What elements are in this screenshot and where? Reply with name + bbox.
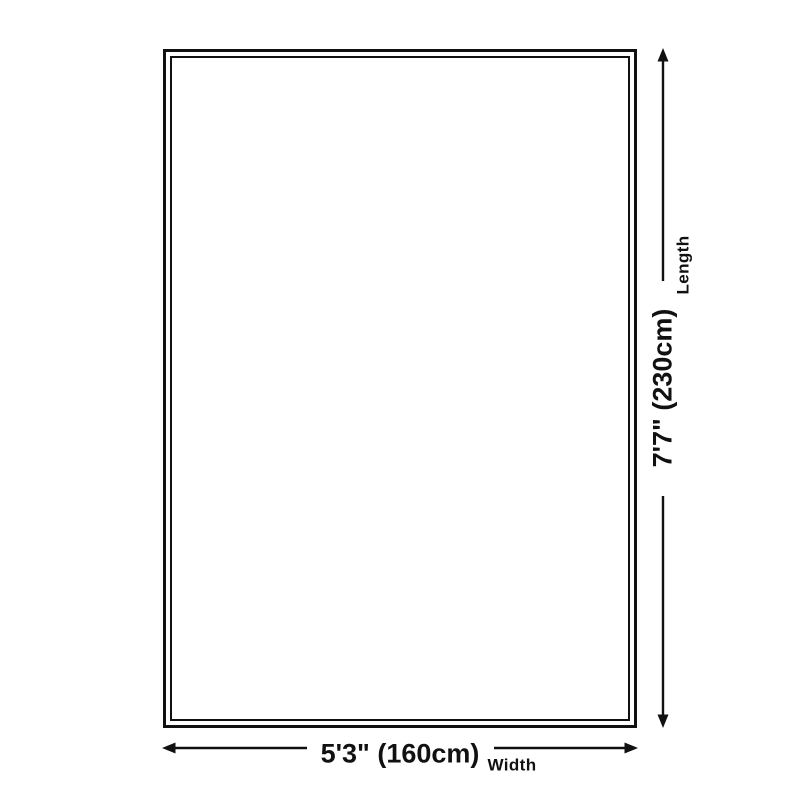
width-dimension-value: 5'3" (160cm) [321,741,480,768]
width-dimension-label: Width [487,757,536,774]
rug-outline [163,49,637,728]
length-dimension-value: 7'7" (230cm) [650,309,677,468]
rug-inner-border [170,56,630,721]
length-dimension-label: Length [675,235,692,294]
rug-dimension-diagram: 5'3" (160cm) Width 7'7" (230cm) Length [0,0,800,800]
